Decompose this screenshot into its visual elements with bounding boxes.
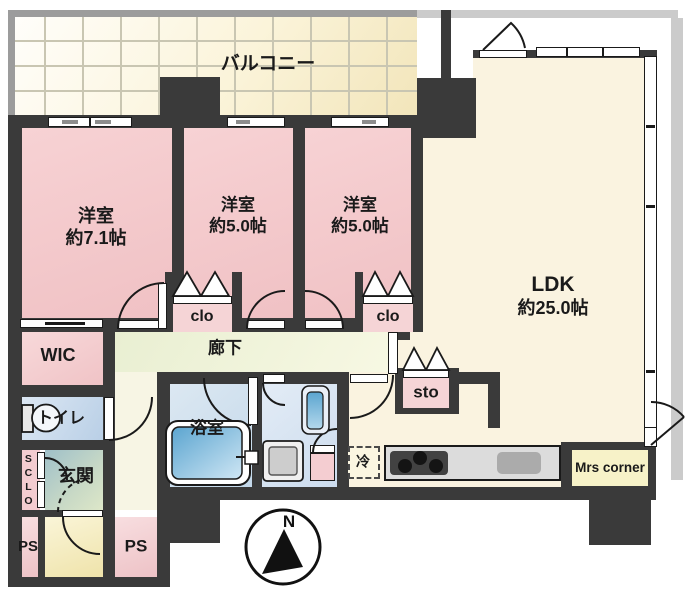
- toilet-label: トイレ: [37, 409, 85, 429]
- window-sash: [646, 370, 655, 373]
- door-leaf: [388, 332, 398, 374]
- window-sash: [646, 125, 655, 128]
- balcony-pillar: [160, 77, 220, 128]
- ldk-label: LDK 約25.0帖: [517, 272, 588, 320]
- floor-plan: N バルコニー 洋室 約7.1帖 洋室 約5.0帖 洋室 約5.0帖 LDK 約…: [0, 0, 692, 604]
- bedroom2-size: 約5.0帖: [209, 216, 267, 237]
- wall: [232, 272, 242, 318]
- compass-needle: [262, 529, 303, 574]
- wall: [398, 332, 410, 340]
- ldk-room: [473, 58, 655, 138]
- bedroom1-label: 洋室 約7.1帖: [65, 206, 126, 250]
- pillar: [417, 78, 476, 138]
- wall: [8, 577, 170, 587]
- washroom-cabinet: [310, 453, 335, 481]
- closet3-label: clo: [376, 307, 399, 327]
- wall: [157, 500, 170, 587]
- window-mullion: [566, 47, 568, 57]
- entrance-label: 玄関: [58, 466, 94, 488]
- shoes-closet-door: [37, 481, 45, 508]
- wall: [15, 385, 103, 397]
- closet2-label: clo: [190, 307, 213, 327]
- door-opening: [263, 374, 285, 383]
- door-leaf: [350, 374, 388, 383]
- storage-shelf: [403, 370, 449, 378]
- bedroom1-name: 洋室: [65, 206, 126, 228]
- balcony-door-swing: [483, 23, 525, 50]
- door-leaf: [248, 377, 258, 425]
- wall: [488, 384, 500, 428]
- wic-opening-line: [45, 322, 85, 325]
- mrs-corner-label: Mrs corner: [575, 460, 645, 476]
- window-wall: [644, 56, 657, 429]
- window-sash: [236, 120, 250, 124]
- bedroom2-name: 洋室: [209, 195, 267, 216]
- window: [536, 47, 640, 57]
- shadow-right: [671, 18, 683, 480]
- stove: [390, 451, 448, 475]
- ldk-size: 約25.0帖: [517, 298, 588, 320]
- shoes-closet-door: [37, 452, 45, 479]
- corridor: [115, 332, 388, 372]
- pillar: [441, 10, 451, 78]
- wic-label: WIC: [41, 345, 76, 367]
- wall: [355, 272, 363, 318]
- kitchen-sink: [497, 452, 541, 474]
- wall: [589, 500, 651, 545]
- shadow-top: [417, 10, 678, 18]
- balcony-label: バルコニー: [221, 52, 316, 75]
- bedroom3-size: 約5.0帖: [331, 216, 389, 237]
- shoes-closet-label: SCLO: [22, 453, 35, 509]
- closet-shelf: [363, 296, 413, 304]
- window-sash: [95, 120, 111, 124]
- bedroom1-size: 約7.1帖: [65, 228, 126, 250]
- storage-label: sto: [413, 383, 439, 404]
- wall: [413, 272, 423, 318]
- bedroom3-label: 洋室 約5.0帖: [331, 195, 389, 236]
- door-threshold: [305, 320, 343, 329]
- door-leaf: [104, 397, 114, 440]
- bedroom3-name: 洋室: [331, 195, 389, 216]
- wall: [103, 510, 115, 587]
- wall: [337, 372, 349, 500]
- wall: [38, 517, 45, 577]
- door-leaf: [158, 283, 167, 329]
- corridor-label: 廊下: [208, 339, 242, 360]
- door-threshold: [247, 320, 285, 329]
- balcony-fence-top: [8, 10, 417, 17]
- bedroom2-label: 洋室 約5.0帖: [209, 195, 267, 236]
- cabinet-top-bar: [310, 445, 335, 453]
- wall: [293, 118, 305, 332]
- fridge-label: 冷: [356, 453, 370, 470]
- ldk-room: [398, 332, 655, 372]
- entry-threshold: [62, 510, 103, 517]
- wall: [449, 372, 500, 384]
- ps-left-label: PS: [18, 538, 38, 556]
- ps-right-label: PS: [125, 537, 148, 558]
- bath-label: 浴室: [190, 419, 224, 440]
- window-mullion: [602, 47, 604, 57]
- closet-shelf: [173, 296, 232, 304]
- wall: [157, 487, 589, 500]
- window-sash: [362, 120, 376, 124]
- balcony-fence-left: [8, 10, 15, 118]
- wall: [15, 440, 103, 450]
- window-sash: [646, 205, 655, 208]
- window-mullion: [89, 117, 91, 127]
- compass-circle: [246, 510, 320, 584]
- ldk-door-opening: [479, 50, 527, 58]
- door-jamb: [644, 427, 657, 447]
- wall: [157, 372, 170, 500]
- hallway: [115, 372, 157, 510]
- ldk-name: LDK: [517, 272, 588, 298]
- window-sash: [62, 120, 78, 124]
- entry-porch: [45, 517, 103, 577]
- compass-north-label: N: [283, 512, 295, 531]
- window: [331, 117, 389, 127]
